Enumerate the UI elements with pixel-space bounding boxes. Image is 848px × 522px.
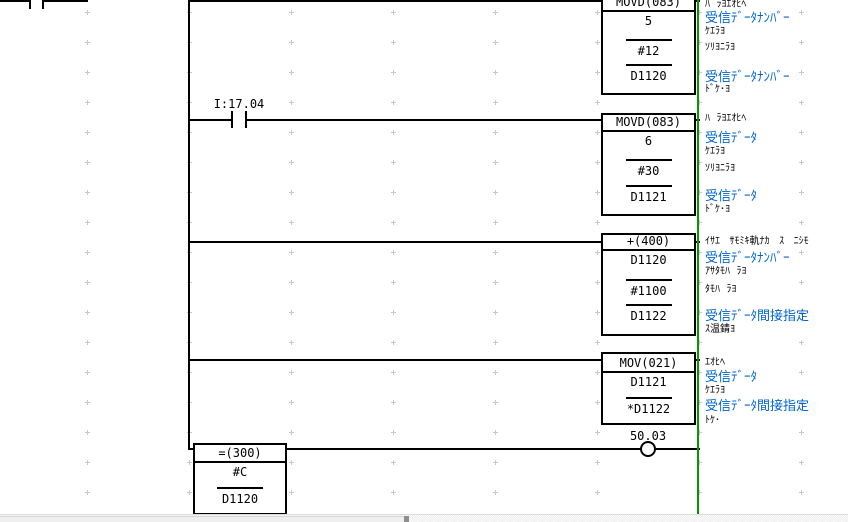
grid-dot — [799, 490, 804, 495]
block-operand[interactable]: D1120 — [630, 254, 666, 267]
grid-dot — [289, 490, 294, 495]
comment-line: 受信ﾃﾞｰﾀﾅﾝﾊﾞｰ — [705, 12, 790, 25]
comment-line: ｹｴﾗﾖ — [705, 147, 725, 157]
comment-line: ﾄﾞｹ･ﾖ — [705, 205, 730, 215]
grid-dot — [85, 400, 90, 405]
grid-dot — [595, 70, 600, 75]
output-coil-icon[interactable] — [640, 441, 656, 457]
grid-dot — [289, 340, 294, 345]
grid-dot — [799, 190, 804, 195]
grid-dot — [799, 160, 804, 165]
grid-dot — [85, 70, 90, 75]
horizontal-scrollbar[interactable] — [0, 514, 848, 522]
grid-dot — [799, 370, 804, 375]
right-bus-bar — [697, 0, 699, 515]
comment-line: 受信ﾃﾞｰﾀ間接指定 — [705, 310, 809, 323]
grid-dot — [595, 310, 600, 315]
operand-separator — [626, 159, 672, 161]
grid-dot — [187, 490, 192, 495]
grid-dot — [391, 100, 396, 105]
comment-line: ｿﾘﾖﾆﾗﾖ — [705, 43, 735, 53]
block-title: +(400) — [603, 235, 694, 251]
partial-contact-bar-left — [29, 0, 31, 9]
scrollbar-thumb-edge[interactable] — [404, 516, 409, 522]
grid-dot — [187, 460, 192, 465]
grid-dot — [289, 100, 294, 105]
grid-dot — [391, 70, 396, 75]
grid-dot — [493, 40, 498, 45]
grid-dot — [799, 430, 804, 435]
grid-dot — [493, 250, 498, 255]
grid-dot — [85, 220, 90, 225]
grid-dot — [595, 250, 600, 255]
block-operand[interactable]: #1100 — [630, 285, 666, 298]
comment-line: 受信ﾃﾞｰﾀ — [705, 132, 757, 145]
partial-contact-wire-right — [43, 0, 88, 2]
grid-dot — [289, 220, 294, 225]
grid-dot — [391, 490, 396, 495]
grid-dot — [595, 370, 600, 375]
grid-dot — [85, 370, 90, 375]
grid-dot — [493, 340, 498, 345]
grid-dot — [799, 460, 804, 465]
grid-dot — [85, 160, 90, 165]
grid-dot — [799, 220, 804, 225]
ladder-editor-canvas: I:17.04 MOVD(083) 5 #12 D1120 MOVD(083) … — [0, 0, 848, 522]
comment-line: ｿﾘﾖﾆﾗﾖ — [705, 164, 735, 174]
contact-bar-left — [231, 111, 233, 128]
block-operand[interactable]: #C — [233, 466, 247, 479]
rung2-wire-left — [188, 119, 232, 121]
block-title: =(300) — [195, 445, 285, 463]
operand-separator — [217, 487, 263, 489]
comment-line: 受信ﾃﾞｰﾀﾅﾝﾊﾞｰ — [705, 71, 790, 84]
comment-line: ﾀﾓﾊ ﾗﾖ — [705, 285, 736, 295]
grid-dot — [493, 220, 498, 225]
grid-dot — [493, 10, 498, 15]
block-operand[interactable]: 5 — [645, 15, 652, 28]
comment-line: ｲｻｴ ｻﾓﾐｷ軌ﾅｶ ｽ ﾆｼﾓ — [705, 237, 809, 247]
grid-dot — [289, 10, 294, 15]
block-operand[interactable]: *D1122 — [627, 403, 670, 416]
instruction-block-mov[interactable]: MOV(021) D1121 *D1122 — [601, 352, 696, 425]
rung2-wire-right — [247, 119, 602, 121]
grid-dot — [391, 160, 396, 165]
grid-dot — [595, 400, 600, 405]
operand-separator — [626, 279, 672, 281]
grid-dot — [493, 100, 498, 105]
block-operand[interactable]: D1120 — [222, 493, 258, 506]
grid-dot — [289, 370, 294, 375]
grid-dot — [391, 130, 396, 135]
grid-dot — [289, 310, 294, 315]
comment-line: 受信ﾃﾞｰﾀ — [705, 371, 757, 384]
grid-dot — [289, 460, 294, 465]
grid-dot — [391, 460, 396, 465]
grid-dot — [391, 40, 396, 45]
grid-dot — [391, 340, 396, 345]
grid-dot — [391, 310, 396, 315]
grid-dot — [289, 130, 294, 135]
grid-dot — [289, 280, 294, 285]
comment-line: ｹｴﾗﾖ — [705, 386, 725, 396]
grid-dot — [595, 220, 600, 225]
grid-dot — [595, 190, 600, 195]
grid-dot — [595, 430, 600, 435]
grid-dot — [85, 130, 90, 135]
comment-line: ｱｻﾀﾓﾊ ﾗﾖ — [705, 267, 746, 277]
grid-dot — [85, 250, 90, 255]
rung5-wire-right — [656, 448, 700, 450]
scrollbar-thumb[interactable] — [0, 516, 404, 522]
comment-line: ﾊ ﾗﾖｴｵﾋﾍ — [705, 0, 746, 10]
grid-dot — [595, 490, 600, 495]
grid-dot — [493, 70, 498, 75]
grid-dot — [289, 160, 294, 165]
block-operand[interactable]: #12 — [638, 45, 660, 58]
grid-dot — [85, 40, 90, 45]
rung3-wire — [188, 241, 602, 243]
grid-dot — [391, 430, 396, 435]
grid-dot — [595, 160, 600, 165]
grid-dot — [799, 340, 804, 345]
operand-separator — [626, 39, 672, 41]
rung5-wire-left — [285, 448, 641, 450]
grid-dot — [85, 490, 90, 495]
comment-line: ﾄﾞｹ･ﾖ — [705, 85, 730, 95]
grid-dot — [289, 40, 294, 45]
block-title: MOVD(083) — [603, 0, 694, 12]
block-operand[interactable]: 6 — [645, 135, 652, 148]
block-operand[interactable]: #30 — [638, 165, 660, 178]
grid-dot — [85, 340, 90, 345]
rung4-wire — [188, 359, 602, 361]
operand-separator — [626, 64, 672, 66]
grid-dot — [595, 40, 600, 45]
instruction-block-movd-2[interactable]: MOVD(083) 6 #30 D1121 — [601, 113, 696, 216]
grid-dot — [799, 250, 804, 255]
block-operand[interactable]: D1121 — [630, 376, 666, 389]
block-title: MOV(021) — [603, 354, 694, 373]
grid-dot — [391, 400, 396, 405]
grid-dot — [391, 220, 396, 225]
grid-dot — [595, 10, 600, 15]
grid-dot — [595, 340, 600, 345]
grid-dot — [493, 490, 498, 495]
block-operand[interactable]: D1120 — [630, 70, 666, 83]
operand-separator — [626, 397, 672, 399]
rung1-wire — [188, 0, 602, 2]
comment-line: ｴｵﾋﾍ — [705, 358, 725, 368]
block-operand[interactable]: D1122 — [630, 310, 666, 323]
grid-dot — [493, 430, 498, 435]
grid-dot — [493, 190, 498, 195]
comment-line: ﾄｹ･ — [705, 416, 720, 426]
grid-dot — [289, 70, 294, 75]
grid-dot — [85, 100, 90, 105]
instruction-block-plus[interactable]: +(400) D1120 #1100 D1122 — [601, 233, 696, 336]
comment-line: 受信ﾃﾞｰﾀ間接指定 — [705, 400, 809, 413]
grid-dot — [799, 130, 804, 135]
grid-dot — [391, 250, 396, 255]
grid-dot — [85, 280, 90, 285]
grid-dot — [391, 370, 396, 375]
grid-dot — [493, 400, 498, 405]
grid-dot — [493, 370, 498, 375]
grid-dot — [493, 460, 498, 465]
instruction-block-equals[interactable]: =(300) #C D1120 — [193, 443, 287, 515]
grid-dot — [595, 100, 600, 105]
grid-dot — [595, 460, 600, 465]
grid-dot — [289, 430, 294, 435]
grid-dot — [85, 310, 90, 315]
instruction-block-movd-1[interactable]: MOVD(083) 5 #12 D1120 — [601, 0, 696, 95]
grid-dot — [391, 280, 396, 285]
grid-dot — [799, 280, 804, 285]
grid-dot — [289, 190, 294, 195]
comment-line: 受信ﾃﾞｰﾀﾅﾝﾊﾞｰ — [705, 252, 790, 265]
comment-line: ｹｴﾗﾖ — [705, 27, 725, 37]
grid-dot — [391, 190, 396, 195]
grid-dot — [799, 40, 804, 45]
grid-dot — [289, 400, 294, 405]
grid-dot — [799, 100, 804, 105]
left-branch-rail — [188, 0, 190, 450]
grid-dot — [85, 460, 90, 465]
grid-dot — [85, 190, 90, 195]
grid-dot — [799, 70, 804, 75]
grid-dot — [289, 250, 294, 255]
block-title: MOVD(083) — [603, 115, 694, 132]
grid-dot — [85, 430, 90, 435]
comment-line: ﾊ ﾗﾖｴｵﾋﾍ — [705, 114, 746, 124]
partial-contact-wire-left — [0, 0, 30, 2]
grid-dot — [595, 280, 600, 285]
contact-label[interactable]: I:17.04 — [208, 97, 270, 111]
grid-dot — [595, 130, 600, 135]
grid-dot — [493, 160, 498, 165]
comment-line: 受信ﾃﾞｰﾀ — [705, 190, 757, 203]
block-operand[interactable]: D1121 — [630, 191, 666, 204]
comment-line: ｽ温錆ﾖ — [705, 325, 735, 335]
grid-dot — [493, 130, 498, 135]
operand-separator — [626, 185, 672, 187]
grid-dot — [85, 10, 90, 15]
grid-dot — [391, 10, 396, 15]
operand-separator — [626, 304, 672, 306]
grid-dot — [493, 280, 498, 285]
grid-dot — [493, 310, 498, 315]
grid-dot — [799, 10, 804, 15]
